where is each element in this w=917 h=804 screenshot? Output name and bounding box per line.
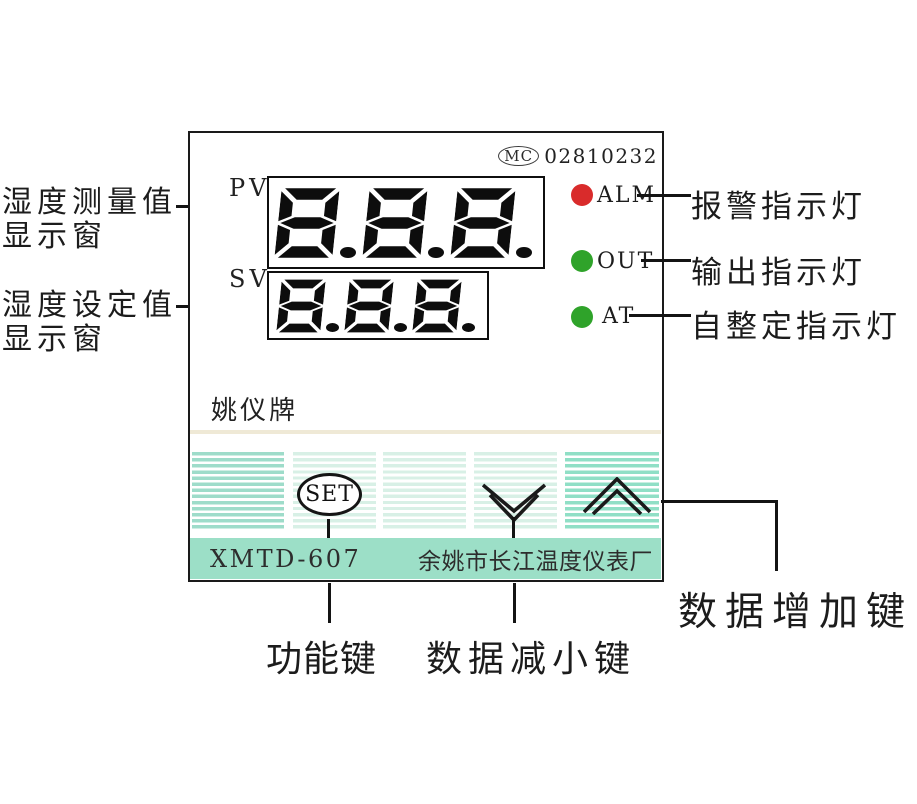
alarm-indicator-led	[571, 184, 593, 206]
pv-window-annotation-line2: 显示窗	[2, 220, 177, 254]
leader-line-decrease-key	[513, 583, 516, 623]
output-indicator-led	[571, 250, 593, 272]
decimal-point	[340, 247, 356, 258]
leader-line-output	[641, 259, 691, 262]
model-bar: XMTD-607 余姚市长江温度仪表厂	[190, 538, 661, 579]
leader-line-function-key	[328, 583, 331, 623]
pv-label: PV	[229, 174, 270, 202]
seven-segment-digit	[412, 279, 462, 333]
key-blank-middle[interactable]	[383, 452, 466, 531]
alarm-light-annotation: 报警指示灯	[691, 181, 866, 226]
decimal-point	[516, 247, 532, 258]
autotune-light-annotation: 自整定指示灯	[691, 301, 901, 346]
sv-window-annotation-line1: 湿度设定值	[2, 289, 177, 323]
sv-window-annotation-line2: 显示窗	[2, 323, 177, 357]
certification-number: 02810232	[544, 144, 658, 168]
function-key-annotation: 功能键	[266, 630, 377, 682]
leader-line-alarm	[637, 194, 691, 197]
model-number: XMTD-607	[210, 545, 361, 573]
controller-front-panel: MC 02810232 PV SV ALM OUT AT 姚仪牌 SET	[188, 131, 664, 582]
seven-segment-digit	[344, 279, 394, 333]
decimal-point	[462, 323, 475, 332]
decrease-connector-stub	[512, 517, 515, 538]
decimal-point	[428, 247, 444, 258]
decimal-point	[326, 323, 339, 332]
seven-segment-digit	[274, 187, 340, 259]
decrease-chevron-icon[interactable]	[482, 482, 546, 522]
seven-segment-digit	[362, 187, 428, 259]
pv-window-annotation: 湿度测量值 显示窗	[2, 186, 177, 254]
certification-mark: MC 02810232	[498, 144, 658, 168]
pv-display	[267, 176, 545, 269]
leader-line-increase-key-vertical	[775, 500, 778, 571]
seven-segment-digit	[276, 279, 326, 333]
decimal-point	[394, 323, 407, 332]
key-blank-left[interactable]	[192, 452, 284, 531]
sv-label: SV	[229, 265, 271, 293]
seven-segment-digit	[450, 187, 516, 259]
sv-display	[267, 271, 489, 340]
increase-chevron-icon[interactable]	[583, 477, 651, 515]
set-button[interactable]: SET	[297, 473, 362, 516]
sv-window-annotation: 湿度设定值 显示窗	[2, 289, 177, 357]
increase-key-annotation: 数据增加键	[678, 581, 913, 637]
brand-name: 姚仪牌	[211, 390, 298, 427]
leader-line-increase-key-horizontal	[661, 500, 778, 503]
autotune-indicator-led	[571, 306, 593, 328]
separator-line	[190, 430, 661, 434]
pv-window-annotation-line1: 湿度测量值	[2, 186, 177, 220]
manufacturer-name: 余姚市长江温度仪表厂	[418, 542, 653, 576]
decrease-key-annotation: 数据减小键	[426, 630, 636, 682]
output-light-annotation: 输出指示灯	[691, 247, 866, 292]
set-connector-stub	[327, 519, 330, 538]
leader-line-autotune	[629, 314, 691, 317]
controller-panel-diagram: 湿度测量值 显示窗 湿度设定值 显示窗 MC 02810232 PV SV AL…	[0, 0, 917, 804]
mc-logo: MC	[498, 146, 539, 166]
